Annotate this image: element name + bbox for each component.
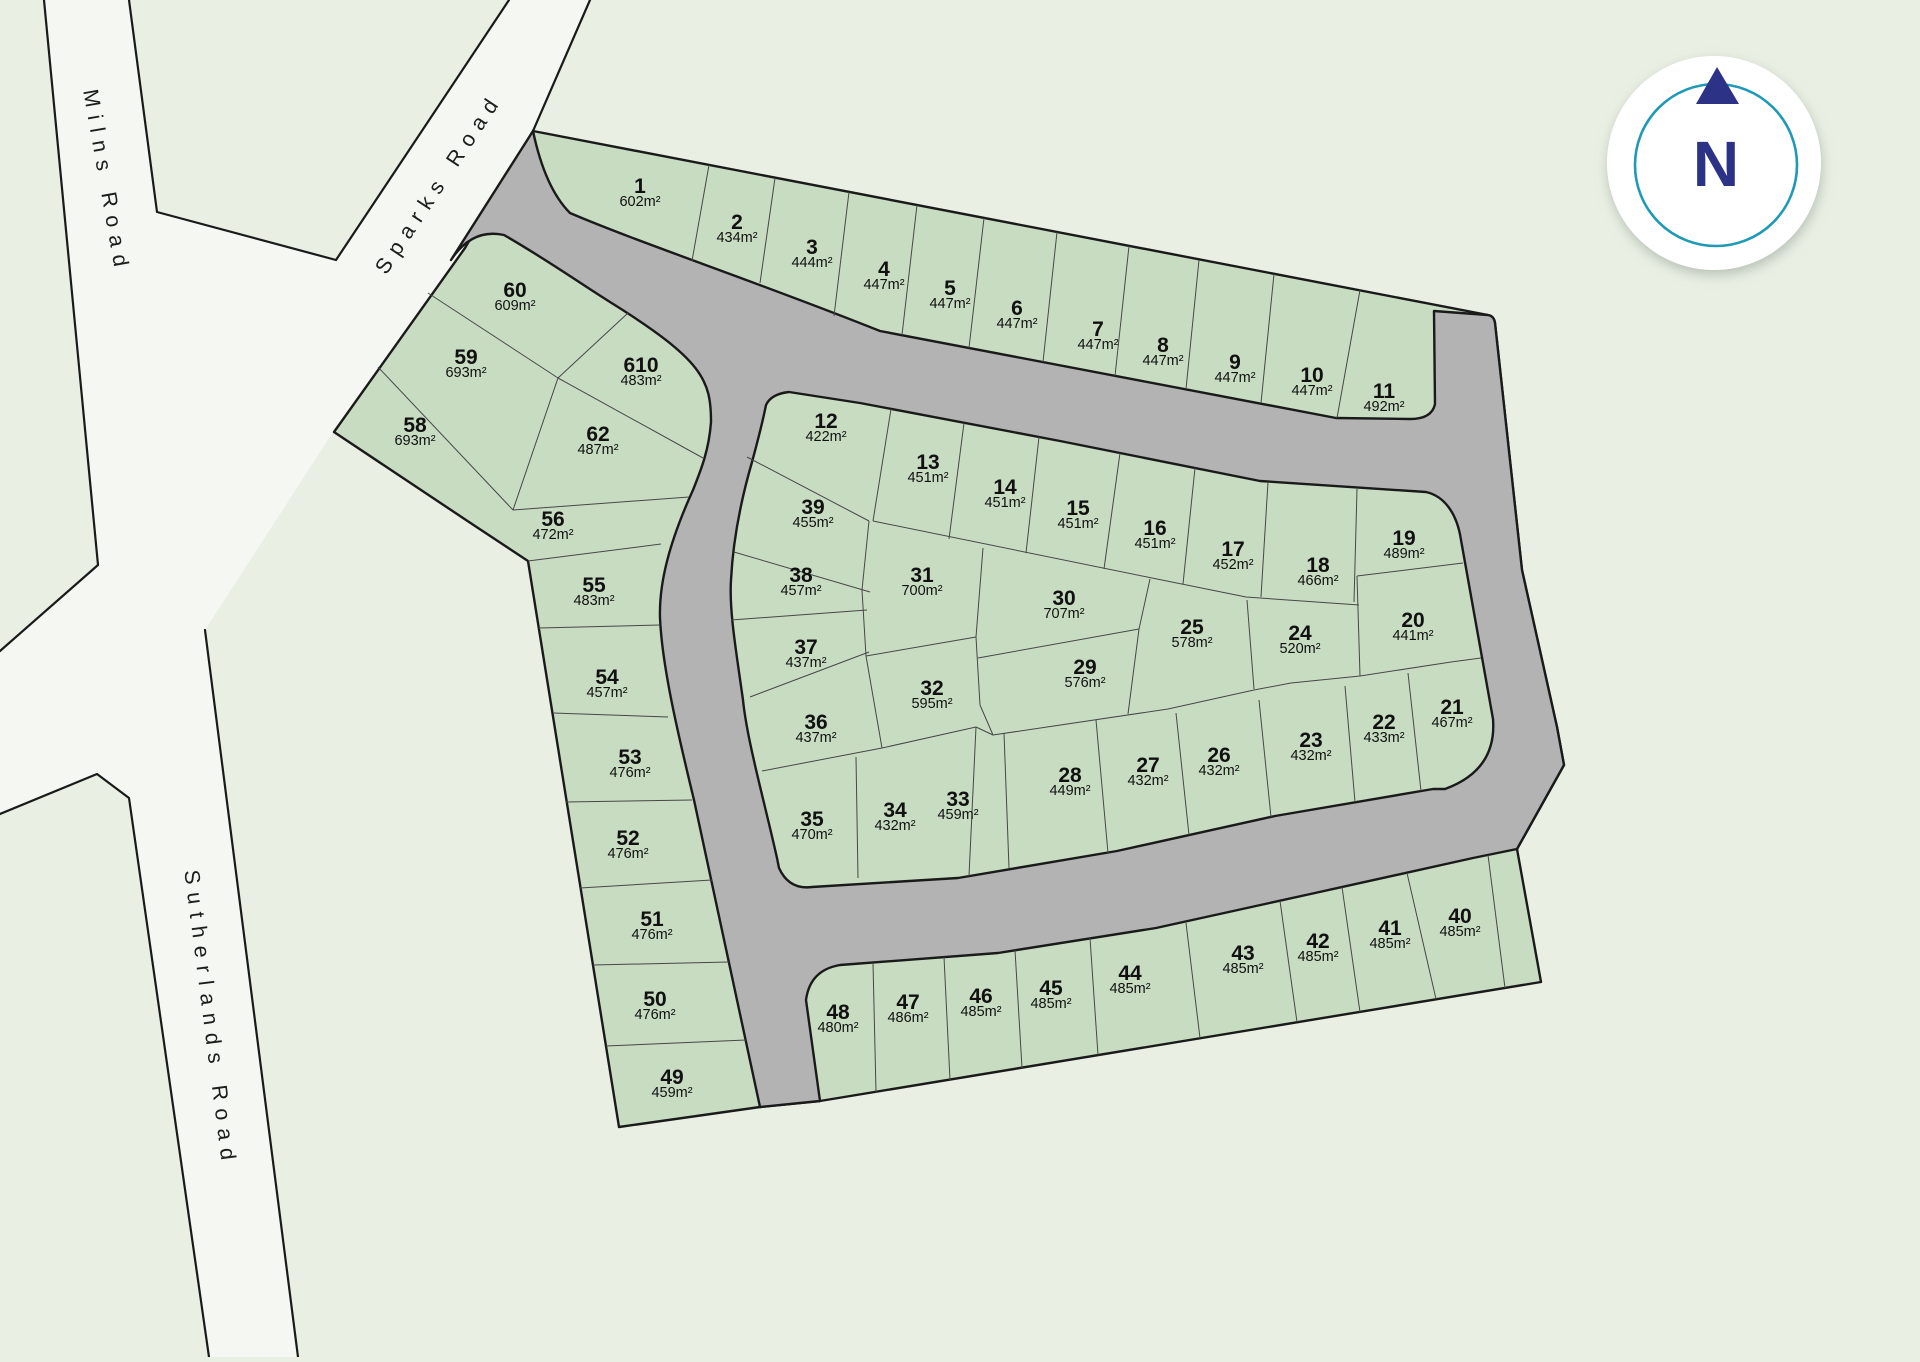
svg-text:483m²: 483m² [573, 593, 614, 609]
svg-text:N: N [1693, 128, 1739, 200]
svg-text:451m²: 451m² [984, 495, 1025, 511]
svg-text:485m²: 485m² [960, 1004, 1001, 1020]
svg-text:485m²: 485m² [1109, 981, 1150, 997]
svg-text:595m²: 595m² [911, 696, 952, 712]
svg-text:476m²: 476m² [609, 765, 650, 781]
svg-text:432m²: 432m² [1290, 748, 1331, 764]
svg-text:693m²: 693m² [445, 365, 486, 381]
svg-text:485m²: 485m² [1297, 949, 1338, 965]
svg-text:444m²: 444m² [791, 255, 832, 271]
svg-text:447m²: 447m² [863, 277, 904, 293]
svg-text:487m²: 487m² [577, 442, 618, 458]
svg-text:459m²: 459m² [651, 1085, 692, 1101]
svg-text:476m²: 476m² [631, 927, 672, 943]
svg-text:707m²: 707m² [1043, 606, 1084, 622]
svg-text:447m²: 447m² [1142, 353, 1183, 369]
svg-text:451m²: 451m² [1134, 536, 1175, 552]
svg-text:476m²: 476m² [634, 1007, 675, 1023]
svg-text:472m²: 472m² [532, 527, 573, 543]
svg-text:520m²: 520m² [1279, 641, 1320, 657]
svg-text:576m²: 576m² [1064, 675, 1105, 691]
svg-text:470m²: 470m² [791, 827, 832, 843]
svg-text:449m²: 449m² [1049, 783, 1090, 799]
svg-text:447m²: 447m² [996, 316, 1037, 332]
svg-text:437m²: 437m² [795, 730, 836, 746]
svg-text:422m²: 422m² [805, 429, 846, 445]
svg-text:447m²: 447m² [1214, 370, 1255, 386]
svg-text:483m²: 483m² [620, 373, 661, 389]
svg-text:447m²: 447m² [929, 296, 970, 312]
svg-text:451m²: 451m² [907, 470, 948, 486]
svg-text:452m²: 452m² [1212, 557, 1253, 573]
svg-text:578m²: 578m² [1171, 635, 1212, 651]
svg-text:693m²: 693m² [394, 433, 435, 449]
svg-text:447m²: 447m² [1077, 337, 1118, 353]
svg-text:609m²: 609m² [494, 298, 535, 314]
svg-text:486m²: 486m² [887, 1010, 928, 1026]
svg-text:492m²: 492m² [1363, 399, 1404, 415]
svg-text:433m²: 433m² [1363, 730, 1404, 746]
svg-text:602m²: 602m² [619, 194, 660, 210]
svg-text:485m²: 485m² [1030, 996, 1071, 1012]
svg-text:441m²: 441m² [1392, 628, 1433, 644]
svg-text:451m²: 451m² [1057, 516, 1098, 532]
svg-text:432m²: 432m² [1198, 763, 1239, 779]
svg-text:447m²: 447m² [1291, 383, 1332, 399]
svg-text:489m²: 489m² [1383, 546, 1424, 562]
svg-text:485m²: 485m² [1439, 924, 1480, 940]
svg-text:485m²: 485m² [1369, 936, 1410, 952]
svg-text:432m²: 432m² [1127, 773, 1168, 789]
svg-text:455m²: 455m² [792, 515, 833, 531]
svg-text:485m²: 485m² [1222, 961, 1263, 977]
svg-text:467m²: 467m² [1431, 715, 1472, 731]
svg-text:437m²: 437m² [785, 655, 826, 671]
svg-text:457m²: 457m² [586, 685, 627, 701]
svg-text:700m²: 700m² [901, 583, 942, 599]
svg-text:457m²: 457m² [780, 583, 821, 599]
svg-text:480m²: 480m² [817, 1020, 858, 1036]
svg-text:432m²: 432m² [874, 818, 915, 834]
svg-text:434m²: 434m² [716, 230, 757, 246]
svg-text:466m²: 466m² [1297, 573, 1338, 589]
svg-text:459m²: 459m² [937, 807, 978, 823]
svg-text:476m²: 476m² [607, 846, 648, 862]
